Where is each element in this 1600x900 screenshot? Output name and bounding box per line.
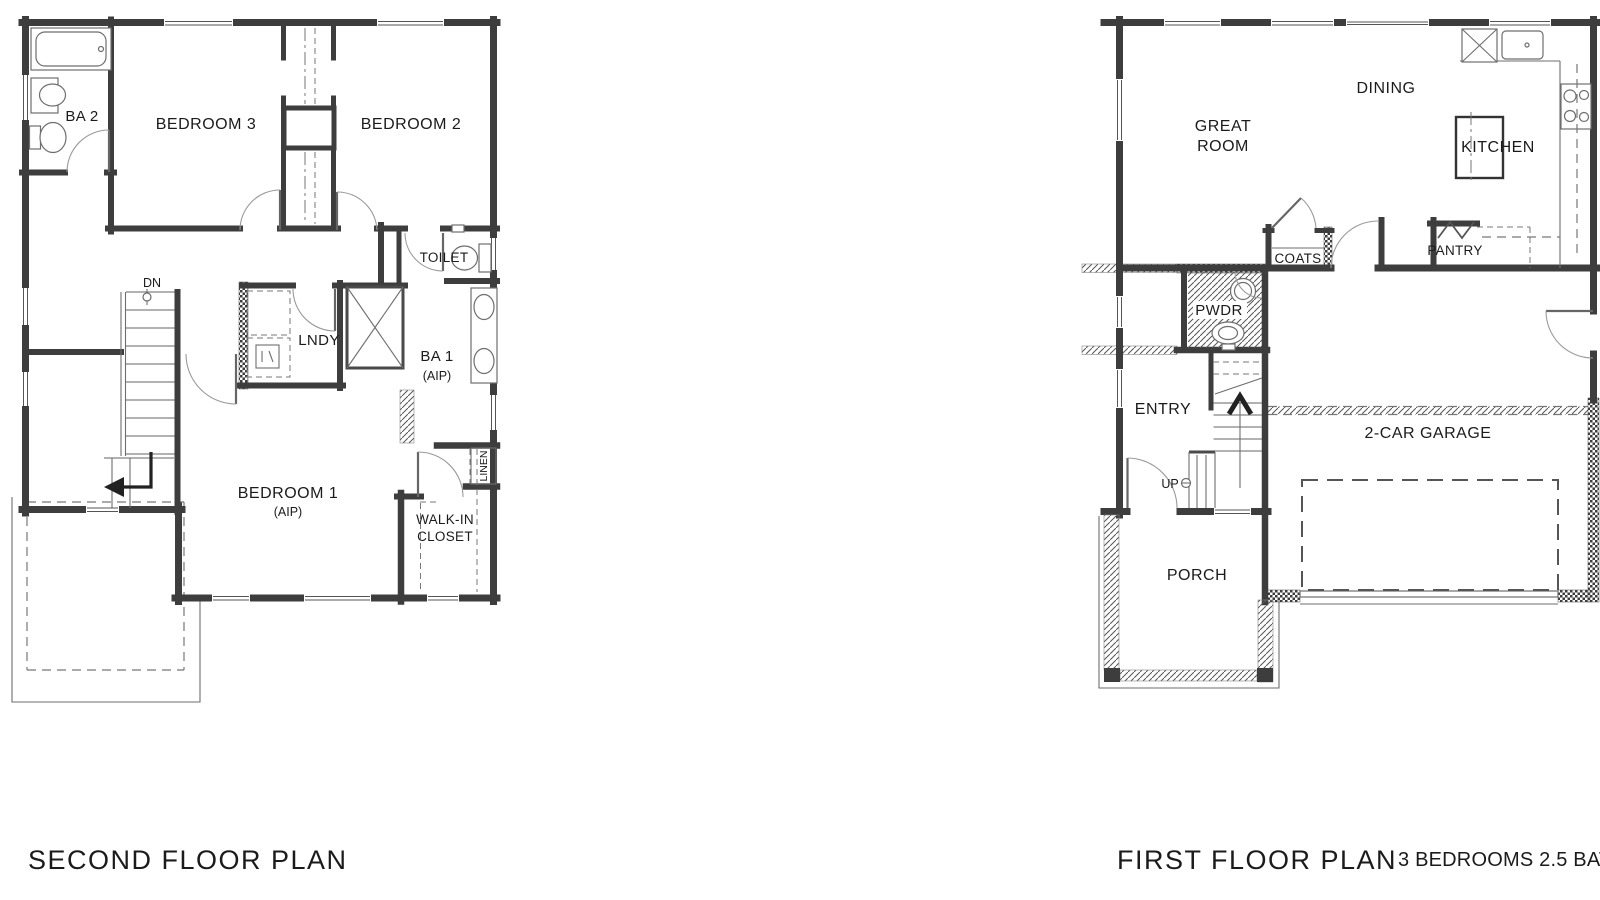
coats-east-wall — [1324, 227, 1332, 268]
label-garage: 2-CAR GARAGE — [1365, 425, 1492, 442]
garage-right-wall — [1588, 398, 1599, 602]
ff-porch — [1099, 515, 1279, 688]
label-bedroom1-note: (AIP) — [274, 505, 302, 519]
ba1-vanity — [471, 288, 497, 383]
ff-staircase — [1181, 362, 1262, 508]
second-floor-plan: BA 2 BEDROOM 3 BEDROOM 2 TOILET DN LNDY … — [12, 18, 498, 702]
label-bedroom2: BEDROOM 2 — [361, 116, 462, 133]
plumbing-wall-hatch — [400, 390, 414, 443]
bathtub — [31, 28, 111, 70]
label-linen: LINEN — [478, 451, 490, 482]
label-walkin-1: WALK-IN — [416, 512, 474, 527]
sf-fixtures — [30, 28, 498, 383]
label-toilet: TOILET — [420, 250, 469, 265]
label-entry: ENTRY — [1135, 401, 1191, 418]
kitchen-sink — [1502, 31, 1543, 59]
ba2-sink — [31, 78, 66, 113]
chase-box — [284, 108, 334, 148]
label-pwdr: PWDR — [1195, 302, 1242, 319]
ba2-toilet — [30, 123, 67, 153]
label-coats: COATS — [1274, 251, 1321, 266]
laundry-machines — [247, 291, 290, 377]
label-ba2: BA 2 — [65, 108, 98, 125]
floor-plan-sheet: BA 2 BEDROOM 3 BEDROOM 2 TOILET DN LNDY … — [0, 0, 1600, 900]
label-bedroom3: BEDROOM 3 — [156, 116, 257, 133]
label-kitchen: KITCHEN — [1461, 139, 1535, 156]
garage-door — [1300, 591, 1558, 597]
label-great-room-1: GREAT — [1195, 118, 1251, 135]
label-up: UP — [1161, 477, 1178, 491]
ff-exterior-walls — [1104, 20, 1599, 605]
label-ba1: BA 1 — [420, 348, 453, 365]
floor-plan-drawing: BA 2 BEDROOM 3 BEDROOM 2 TOILET DN LNDY … — [0, 0, 1600, 900]
label-pantry: PANTRY — [1427, 243, 1482, 258]
porch-post-right — [1257, 668, 1273, 682]
shower — [347, 287, 403, 368]
stair-datum-circle — [143, 293, 151, 301]
plan-summary: 3 BEDROOMS 2.5 BATHS — [1398, 849, 1600, 871]
label-ba1-note: (AIP) — [423, 369, 451, 383]
second-floor-title: SECOND FLOOR PLAN — [28, 845, 348, 875]
first-floor-title: FIRST FLOOR PLAN — [1117, 845, 1397, 875]
pwdr-north-wall — [1177, 264, 1267, 273]
garage-parking-outline — [1302, 480, 1558, 590]
first-floor-plan: GREAT ROOM DINING KITCHEN COATS PANTRY P… — [1082, 18, 1599, 688]
stove — [1561, 84, 1591, 129]
sheet-titles: SECOND FLOOR PLAN FIRST FLOOR PLAN 3 BED… — [28, 845, 1600, 875]
ff-overhang-strips — [1082, 264, 1588, 415]
label-porch: PORCH — [1167, 567, 1227, 584]
laundry-plumbing-wall — [239, 282, 248, 389]
label-bedroom1: BEDROOM 1 — [238, 485, 339, 502]
label-walkin-2: CLOSET — [417, 529, 473, 544]
garage-door-jamb-right — [1558, 590, 1590, 602]
porch-post-left — [1104, 668, 1120, 682]
ff-garage — [1302, 480, 1558, 590]
label-lndy: LNDY — [298, 332, 340, 349]
stair-direction-arrow — [104, 477, 124, 497]
stair-direction-line — [122, 452, 151, 487]
sf-staircase — [104, 289, 175, 508]
label-great-room-2: ROOM — [1197, 138, 1249, 155]
label-dining: DINING — [1357, 80, 1416, 97]
sf-labels: BA 2 BEDROOM 3 BEDROOM 2 TOILET DN LNDY … — [65, 108, 490, 544]
label-dn: DN — [143, 276, 161, 290]
